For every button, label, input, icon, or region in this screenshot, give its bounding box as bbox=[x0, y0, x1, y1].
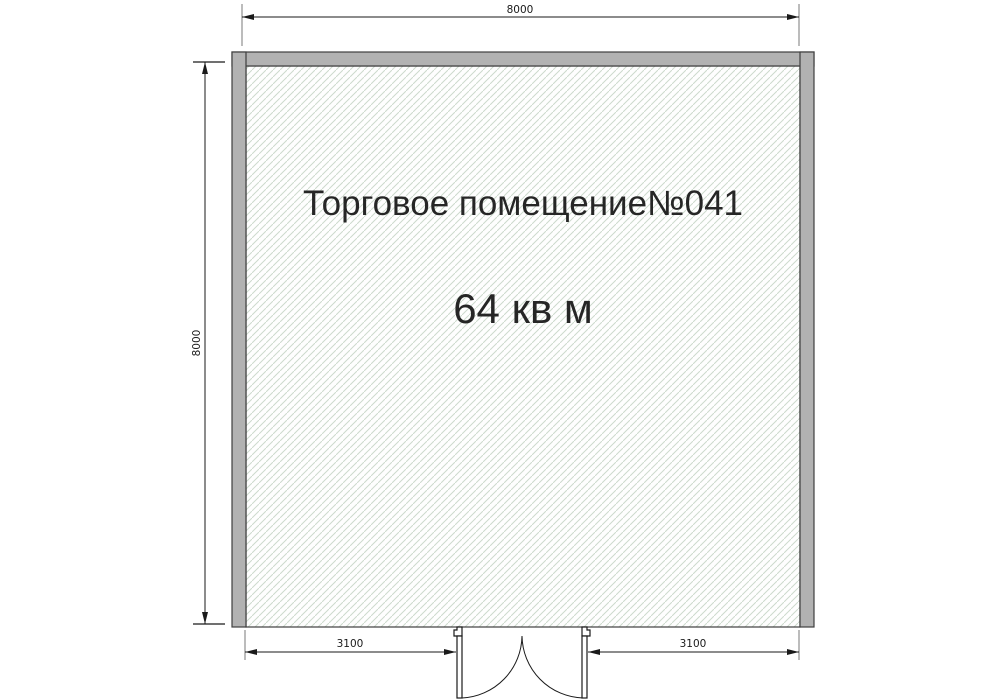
door-jamb-right bbox=[582, 627, 590, 636]
arrowhead-right bbox=[787, 649, 799, 655]
double-door bbox=[454, 627, 590, 698]
dimension-top: 8000 bbox=[242, 4, 799, 46]
dimension-bottom-right: 3100 bbox=[588, 630, 799, 660]
door-swing-arc-left bbox=[462, 636, 522, 698]
room-area-label: 64 кв м bbox=[453, 285, 593, 332]
room-floor-hatch bbox=[246, 66, 800, 627]
wall-right bbox=[800, 52, 814, 627]
arrowhead-left bbox=[588, 649, 600, 655]
arrowhead-right bbox=[787, 14, 799, 20]
arrowhead-right bbox=[444, 649, 456, 655]
arrowhead-down bbox=[202, 612, 208, 624]
dimension-label-bottom-left: 3100 bbox=[337, 638, 364, 650]
dimension-bottom-left: 3100 bbox=[245, 630, 456, 660]
arrowhead-left bbox=[245, 649, 257, 655]
wall-top bbox=[232, 52, 814, 66]
door-leaf-right bbox=[582, 636, 587, 698]
door-jamb-left bbox=[454, 627, 462, 636]
dimension-left: 8000 bbox=[191, 62, 225, 624]
dimension-label-top: 8000 bbox=[507, 4, 534, 16]
room-name-label: Торговое помещение№041 bbox=[303, 184, 743, 223]
arrowhead-left bbox=[242, 14, 254, 20]
floor-plan-drawing: 8000 8000 3100 3100 Торговое bbox=[0, 0, 1000, 700]
wall-left bbox=[232, 52, 246, 627]
door-leaf-left bbox=[457, 636, 462, 698]
door-swing-arc-right bbox=[522, 636, 583, 698]
floor-plan-canvas: 8000 8000 3100 3100 Торговое bbox=[0, 0, 1000, 700]
dimension-label-left: 8000 bbox=[191, 330, 203, 357]
dimension-label-bottom-right: 3100 bbox=[680, 638, 707, 650]
arrowhead-up bbox=[202, 62, 208, 74]
